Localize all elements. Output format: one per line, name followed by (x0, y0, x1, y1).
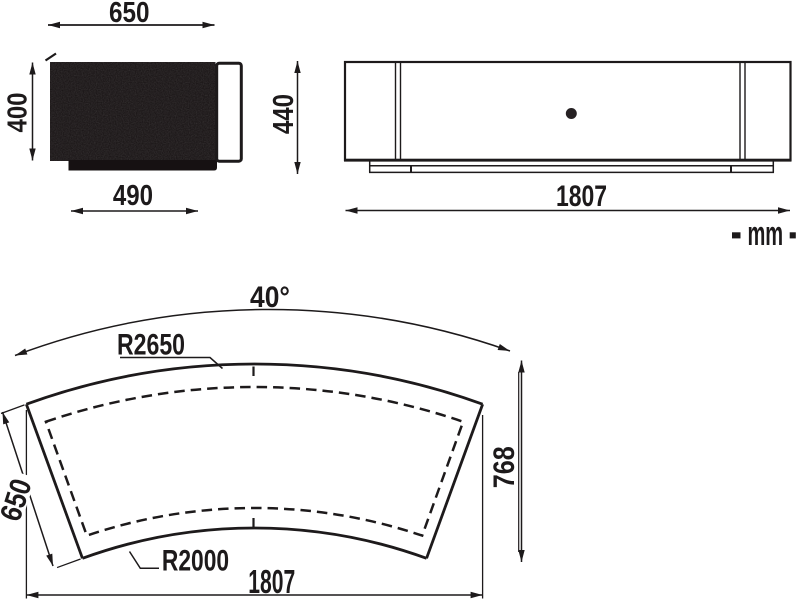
svg-text:R2000: R2000 (162, 543, 229, 577)
svg-text:400: 400 (1, 92, 33, 132)
svg-text:768: 768 (487, 446, 521, 488)
svg-text:mm: mm (747, 215, 783, 253)
svg-text:650: 650 (109, 0, 149, 28)
svg-text:440: 440 (267, 94, 300, 134)
svg-text:1807: 1807 (556, 179, 607, 213)
svg-text:40°: 40° (250, 279, 290, 313)
svg-text:490: 490 (113, 179, 153, 212)
svg-text:R2650: R2650 (117, 328, 185, 362)
svg-text:1807: 1807 (248, 563, 295, 600)
